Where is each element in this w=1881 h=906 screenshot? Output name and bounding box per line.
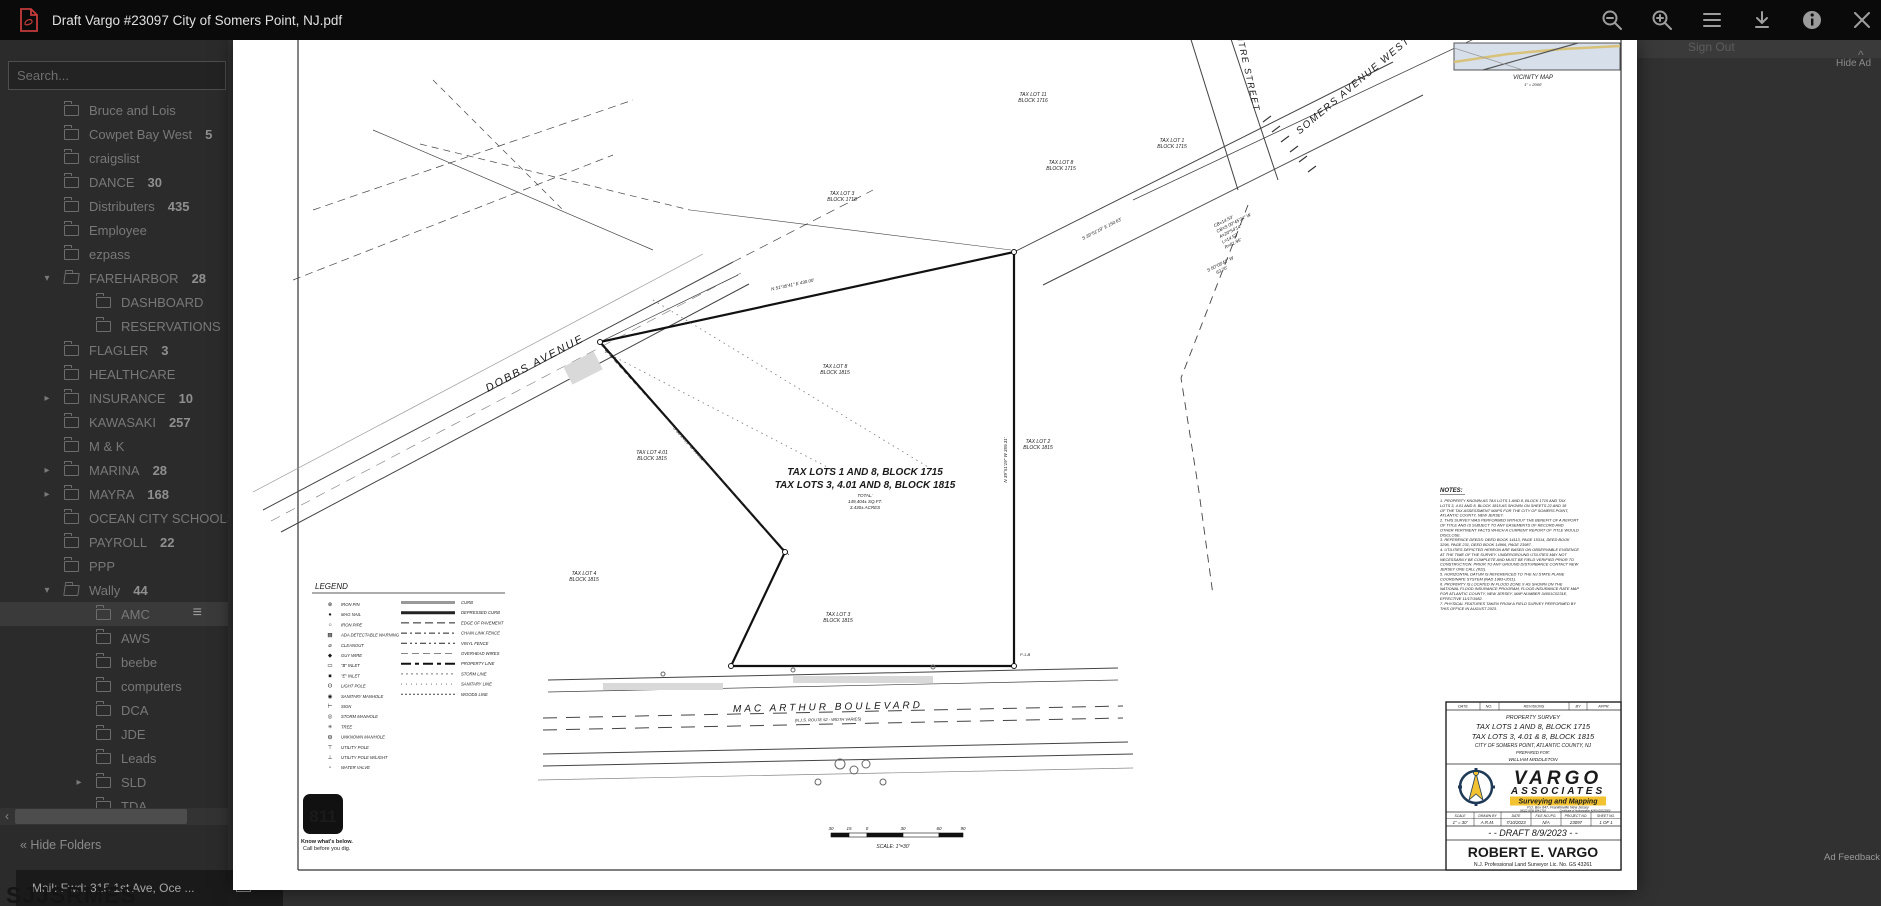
tax-lot-labels: TAX LOT 11BLOCK 1716 TAX LOT 1BLOCK 1715… [569,92,1187,624]
folder-label: FLAGLER [89,343,148,358]
central-lot-title: TAX LOTS 1 AND 8, BLOCK 1715 TAX LOTS 3,… [775,467,956,510]
folder-label: Cowpet Bay West [89,127,192,142]
drawing-label: SANITARY MANHOLE [341,694,383,699]
folder-label: Employee [89,223,147,238]
drawing-label: TREE [341,724,352,729]
woods-lines [605,300,933,470]
folder-label: RESERVATIONS [121,319,221,334]
svg-text:90: 90 [960,826,966,831]
folder-count: 435 [168,199,190,214]
folder-count: 168 [147,487,169,502]
expand-arrow-icon[interactable]: ▾ [38,585,56,596]
svg-text:60: 60 [936,826,942,831]
drawing-label: PROPERTY LINE [461,661,495,666]
legend: LEGEND ⊗IRON PIN●MAG NAIL○IRON PIPE▦ADA … [312,582,505,771]
svg-text:FILE NO./PG.: FILE NO./PG. [1536,814,1557,818]
drawing-label: ◎ [328,714,333,720]
sidebar-folder-bruce-and-lois[interactable]: Bruce and Lois [0,98,228,122]
folder-icon [64,417,79,428]
tb-prepared-for: PREPARED FOR: [1516,750,1550,755]
folder-icon [64,177,79,188]
folder-label: DANCE [89,175,135,190]
svg-text:NO.: NO. [1486,705,1493,709]
sidebar-folder-jde[interactable]: JDE [0,722,228,746]
folder-label: M & K [89,439,124,454]
drawing-label: ▭ [327,663,333,669]
drawing-label: MAG NAIL [341,612,362,617]
svg-text:SCALE: SCALE [1454,814,1466,818]
svg-text:P-1-B: P-1-B [1020,652,1031,657]
svg-text:30: 30 [828,826,834,831]
street-label-macarthur-sub: (N.J.S. ROUTE 52 - WIDTH VARIES) [795,716,862,722]
drawing-label: ⊗ [328,602,333,608]
draft-stamp: - - DRAFT 8/9/2023 - - [1488,828,1578,838]
folder-icon [96,297,111,308]
sidebar-folder-cowpet-bay-west[interactable]: Cowpet Bay West5 [0,122,228,146]
folder-icon [64,393,79,404]
drawing-label: EDGE OF PAVEMENT [461,620,504,625]
svg-text:1 OF 1: 1 OF 1 [1599,820,1613,825]
folder-menu-icon[interactable]: ≡ [193,604,202,622]
svg-text:S 39°51'19" E 150.63': S 39°51'19" E 150.63' [1081,217,1122,241]
svg-text:23097: 23097 [1569,820,1583,825]
drawing-label: UNKNOWN MANHOLE [341,735,385,740]
sidewalk-patches [563,351,933,690]
svg-text:BLOCK 1815: BLOCK 1815 [1023,445,1053,451]
svg-text:TAX LOTS 3, 4.01 AND 8, BLOCK: TAX LOTS 3, 4.01 AND 8, BLOCK 1815 [775,480,956,491]
folder-label: Leads [121,751,156,766]
sidebar-folder-craigslist[interactable]: craigslist [0,146,228,170]
drawing-label: ʘ [328,684,333,690]
sidebar-folder-kawasaki[interactable]: KAWASAKI257 [0,410,228,434]
tb-survey-type: PROPERTY SURVEY [1506,715,1560,721]
folder-label: SLD [121,775,146,790]
folder-label: INSURANCE [89,391,166,406]
drawing-label: ● [328,612,331,618]
drawing-label: ○ [328,622,331,628]
folder-label: MARINA [89,463,140,478]
obscured-background-text: SJJSRMES [6,882,137,906]
svg-text:S 38°24'21" W 350.31': S 38°24'21" W 350.31' [672,426,706,463]
folder-list: Bruce and LoisCowpet Bay West5craigslist… [0,98,228,808]
drawing-label: GUY WIRE [341,653,362,658]
zoom-in-icon[interactable] [1651,9,1673,31]
hide-ad-link[interactable]: Hide Ad [1836,58,1871,69]
folder-label: PPP [89,559,115,574]
svg-text:BLOCK 1715: BLOCK 1715 [1046,166,1076,172]
folder-count: 28 [192,271,206,286]
folder-icon [96,633,111,644]
notes-title: NOTES: [1440,488,1463,494]
folder-icon [64,441,79,452]
sidebar-folder-employee[interactable]: Employee [0,218,228,242]
tb-client: WILLIAM MIDDLETON [1508,757,1558,763]
svg-text:811: 811 [309,807,336,826]
svg-text:SHEET NO.: SHEET NO. [1597,814,1615,818]
folder-icon [64,369,79,380]
drawing-label: ✳ [328,723,333,730]
folder-icon [96,681,111,692]
folder-count: 22 [160,535,174,550]
drawing-label: UTILITY POLE [341,745,369,750]
svg-text:15: 15 [846,826,852,831]
sidebar-folder-insurance[interactable]: ▸INSURANCE10 [0,386,228,410]
folder-label: MAYRA [89,487,134,502]
sidebar-folder-dca[interactable]: DCA [0,698,228,722]
folder-icon [64,465,79,476]
folder-icon [64,561,79,572]
drawing-label: "B" INLET [341,663,360,668]
drawing-label: CLEANOUT [341,643,364,648]
svg-text:BLOCK 1715: BLOCK 1715 [1157,144,1187,150]
folder-icon [64,225,79,236]
svg-text:N 39°51'19" W 359.31': N 39°51'19" W 359.31' [1003,437,1008,482]
svg-text:30: 30 [900,826,906,831]
download-icon[interactable] [1751,9,1773,31]
folder-sidebar: Bruce and LoisCowpet Bay West5craigslist… [0,40,228,906]
sidebar-folder-tda[interactable]: TDA [0,794,228,808]
svg-text:3.430± ACRES: 3.430± ACRES [850,505,880,510]
folder-count: 30 [148,175,162,190]
folder-label: PAYROLL [89,535,147,550]
svg-text:BLOCK 1716: BLOCK 1716 [1018,98,1048,104]
drawing-label: ■ [328,673,331,679]
drawing-label: SANITARY LINE [461,682,492,687]
folder-label: computers [121,679,182,694]
viewer-toolbar [1601,0,1873,40]
pdf-page: DOBBS AVENUE MAC ARTHUR BOULEVARD (N.J.S… [233,40,1637,890]
drawing-label: IRON PIPE [341,622,362,627]
svg-text:149,404± SQ.FT.: 149,404± SQ.FT. [848,499,882,504]
folder-icon [64,201,79,212]
svg-text:TAX LOTS 1 AND 8, BLOCK 1715: TAX LOTS 1 AND 8, BLOCK 1715 [787,467,943,478]
street-label-centre: CENTRE STREET [1231,40,1262,113]
folder-label: KAWASAKI [89,415,156,430]
legend-title: LEGEND [315,582,348,591]
sidebar-folder-ezpass[interactable]: ezpass [0,242,228,266]
sign-out-link[interactable]: Sign Out [1688,40,1735,54]
folder-label: OCEAN CITY SCHOOLS [89,511,228,526]
drawing-label: ◉ [328,694,333,700]
sidebar-folder-flagler[interactable]: FLAGLER3 [0,338,228,362]
drawing-label: ▫ [329,765,331,771]
sidebar-folder-fareharbor[interactable]: ▾FAREHARBOR28 [0,266,228,290]
folder-label: JDE [121,727,146,742]
pdf-title: Draft Vargo #23097 City of Somers Point,… [52,13,342,28]
firm-name-2: ASSOCIATES [1510,786,1605,797]
sidebar-folder-mayra[interactable]: ▸MAYRA168 [0,482,228,506]
vicinity-title: VICINITY MAP [1513,75,1553,81]
folder-count: 28 [153,463,167,478]
drawing-label: ADA DETECTABLE WARNING [340,633,400,638]
scale-caption: SCALE: 1"=30' [876,844,910,850]
tb-lots1: TAX LOTS 1 AND 8, BLOCK 1715 [1476,722,1591,731]
drawing-label: ⊢ [328,703,333,710]
folder-icon [96,801,111,809]
folder-label: craigslist [89,151,140,166]
sidebar-folder-dashboard[interactable]: DASHBOARD [0,290,228,314]
folder-label: Wally [89,583,120,598]
folder-icon [64,129,79,140]
survey-drawing: DOBBS AVENUE MAC ARTHUR BOULEVARD (N.J.S… [233,40,1637,890]
svg-text:A.R.M.: A.R.M. [1480,820,1494,825]
sidebar-folder-payroll[interactable]: PAYROLL22 [0,530,228,554]
notes-block: NOTES: 1. PROPERTY KNOWN AS TAX LOTS 1 A… [1439,488,1579,611]
folder-icon [64,513,79,524]
folder-icon [64,105,79,116]
drawing-label: IRON PIN [341,602,361,607]
drawing-label: CURB [461,600,473,605]
svg-text:DRAWN BY: DRAWN BY [1478,814,1497,818]
hide-folders-button[interactable]: « Hide Folders [20,838,101,852]
drawing-label: ⌀ [328,643,332,649]
expand-arrow-icon[interactable]: ▸ [70,777,88,788]
sidebar-folder-aws[interactable]: AWS [0,626,228,650]
sidebar-folder-reservations[interactable]: RESERVATIONS [0,314,228,338]
drawing-label: WATER VALVE [341,765,370,770]
svg-text:BLOCK 1815: BLOCK 1815 [820,370,850,376]
svg-text:Call before you dig.: Call before you dig. [303,846,351,852]
folder-icon [64,153,79,164]
screen: Sign Out ^ Hide Ad Ad Feedback Bruce and… [0,0,1881,906]
drawing-label: OVERHEAD WIRES [461,651,500,656]
menu-icon[interactable] [1701,9,1723,31]
drawing-label: DEPRESSED CURB [461,610,500,615]
folder-icon [64,537,79,548]
folder-icon [64,249,79,260]
folder-label: HEALTHCARE [89,367,175,382]
svg-text:7/10/2023: 7/10/2023 [1506,820,1526,825]
drawing-label: ◍ [328,735,333,741]
expand-arrow-icon[interactable]: ▸ [38,465,56,476]
drawing-label: SIGN [341,704,352,709]
folder-label: DCA [121,703,148,718]
folder-icon [96,753,111,764]
sidebar-folder-computers[interactable]: computers [0,674,228,698]
drawing-label: CHAIN LINK FENCE [461,631,500,636]
vicinity-scale: 1" = 2000' [1524,82,1542,87]
scrollbar-thumb[interactable] [15,809,187,824]
drawing-label: ▦ [327,633,333,639]
folder-icon [63,585,80,596]
tb-lots2: TAX LOTS 3, 4.01 & 8, BLOCK 1815 [1472,732,1595,741]
sidebar-folder-ppp[interactable]: PPP [0,554,228,578]
svg-text:PROJECT NO.: PROJECT NO. [1565,814,1588,818]
folder-label: AWS [121,631,150,646]
expand-arrow-icon[interactable]: ▸ [38,393,56,404]
sidebar-folder-ocean-city-schools[interactable]: OCEAN CITY SCHOOLS [0,506,228,530]
surveyor-name: ROBERT E. VARGO [1468,844,1599,860]
sidebar-folder-beebe[interactable]: beebe [0,650,228,674]
svg-text:1" = 30': 1" = 30' [1453,820,1468,825]
svg-text:TOTAL:: TOTAL: [857,493,873,498]
folder-count: 44 [133,583,147,598]
close-icon[interactable] [1851,9,1873,31]
folder-icon [96,705,111,716]
drawing-label: STORM MANHOLE [341,714,378,719]
svg-text:BLOCK 1815: BLOCK 1815 [823,618,853,624]
folder-label: Distributers [89,199,155,214]
firm-tagline: Surveying and Mapping [1519,799,1599,806]
expand-arrow-icon[interactable]: ▾ [38,273,56,284]
folder-label: FAREHARBOR [89,271,179,286]
title-block: DATE NO. REVISIONS BY APPR. PROPERTY SUR… [1446,702,1621,870]
svg-text:APPR.: APPR. [1597,705,1609,709]
sidebar-folder-amc[interactable]: AMC≡ [0,602,228,626]
sidebar-folder-distributers[interactable]: Distributers435 [0,194,228,218]
sidebar-folder-wally[interactable]: ▾Wally44 [0,578,228,602]
drawing-label: WOODS LINE [461,692,488,697]
svg-text:N 51°35'41" E 430.00': N 51°35'41" E 430.00' [771,277,815,291]
drawing-label: THIS OFFICE IN AUGUST 2023. [1440,606,1497,611]
svg-text:DATE: DATE [1512,814,1522,818]
drawing-label: ⊥ [328,754,333,761]
folder-label: TDA [121,799,147,809]
sidebar-folder-m-k[interactable]: M & K [0,434,228,458]
folder-label: DASHBOARD [121,295,203,310]
folder-count: 3 [161,343,168,358]
sidebar-folder-marina[interactable]: ▸MARINA28 [0,458,228,482]
scroll-left-arrow[interactable]: ‹ [0,808,14,825]
sidebar-folder-dance[interactable]: DANCE30 [0,170,228,194]
info-icon[interactable] [1801,9,1823,31]
search-input[interactable] [8,61,226,90]
folder-icon [96,657,111,668]
folder-icon [64,489,79,500]
folder-count: 5 [205,127,212,142]
pdf-file-icon [16,7,42,33]
surveyor-license: N.J. Professional Land Surveyor Lic. No.… [1474,862,1592,868]
drawing-label: OTHER PERTINENT FACTS WHICH A CURRENT RE… [1440,527,1579,532]
svg-text:BLOCK 1718: BLOCK 1718 [827,197,857,203]
drawing-label: VINYL FENCE [461,641,489,646]
folder-icon [96,321,111,332]
firm-phone: 08322 (856) 694-1716 [1520,808,1546,812]
street-label-macarthur: MAC ARTHUR BOULEVARD [733,700,923,715]
folder-label: AMC [121,607,150,622]
folder-icon [64,345,79,356]
bearing-annotations: S 39°51'19" E 150.63' CB=14.53' CB=S 00°… [672,206,1260,657]
svg-text:BLOCK 1815: BLOCK 1815 [637,456,667,462]
folder-count: 10 [179,391,193,406]
folder-label: Bruce and Lois [89,103,176,118]
street-label-somers: SOMERS AVENUE WEST [1294,40,1412,137]
svg-text:REVISIONS: REVISIONS [1524,705,1545,709]
svg-text:0: 0 [866,826,869,831]
svg-text:Know what's below.: Know what's below. [301,839,353,845]
svg-text:DATE: DATE [1458,705,1468,709]
folder-icon [96,609,111,620]
svg-text:N/A: N/A [1542,820,1549,825]
horizontal-scrollbar[interactable]: ‹ [0,808,228,825]
ad-feedback-link[interactable]: Ad Feedback [1824,852,1880,863]
background-strip [1637,40,1881,58]
svg-text:BY: BY [1575,705,1581,709]
expand-arrow-icon[interactable]: ▸ [38,489,56,500]
svg-text:BLOCK 1815: BLOCK 1815 [569,577,599,583]
call-811-logo: 811 Know what's below. Call before you d… [301,794,353,852]
drawing-label: LIGHT POLE [341,684,366,689]
folder-icon [96,777,111,788]
drawing-label: ⊤ [328,744,333,751]
folder-count: 257 [169,415,191,430]
drawing-label: "E" INLET [341,673,360,678]
zoom-out-icon[interactable] [1601,9,1623,31]
sidebar-folder-sld[interactable]: ▸SLD [0,770,228,794]
vicinity-map: VICINITY MAP 1" = 2000' [1454,43,1620,87]
drawing-label: STORM LINE [461,671,487,676]
tb-municipality: CITY OF SOMERS POINT, ATLANTIC COUNTY, N… [1475,743,1592,749]
drawing-label: ◆ [328,653,333,659]
folder-icon [63,273,80,284]
drawing-label: UTILITY POLE W/LIGHT [341,755,388,760]
road-linework [253,40,1493,780]
folder-icon [96,729,111,740]
pdf-viewer-topbar: Draft Vargo #23097 City of Somers Point,… [0,0,1881,40]
sidebar-folder-healthcare[interactable]: HEALTHCARE [0,362,228,386]
graphic-scale: 30 15 0 30 60 90 SCALE: 1"=30' [828,826,966,850]
folder-label: beebe [121,655,157,670]
firm-cert: Certificate of Authorization #24GA282235… [1560,808,1611,812]
folder-label: ezpass [89,247,130,262]
sidebar-folder-leads[interactable]: Leads [0,746,228,770]
